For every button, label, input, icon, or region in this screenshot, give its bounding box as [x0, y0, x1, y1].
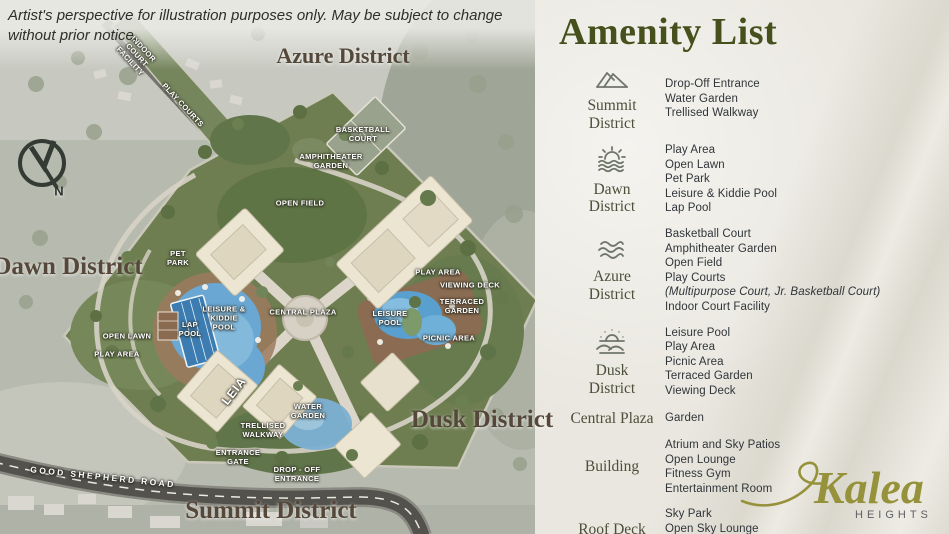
- amenity-item: Play Area: [665, 340, 949, 355]
- page-title: Amenity List: [559, 10, 949, 54]
- map-label-leisure-pool: LEISURE POOL: [367, 309, 413, 327]
- district-label-dawn: Dawn District: [0, 253, 143, 281]
- amenity-item: Indoor Court Facility: [665, 300, 949, 315]
- section-name: Roof Deck: [578, 521, 646, 534]
- amenity-item: Picnic Area: [665, 355, 949, 370]
- amenity-item: Play Courts: [665, 271, 949, 286]
- amenity-item: Trellised Walkway: [665, 106, 949, 121]
- district-label-azure: Azure District: [276, 43, 409, 69]
- amenity-item: Pet Park: [665, 172, 949, 187]
- map-label-central-plaza: CENTRAL PLAZA: [269, 308, 336, 317]
- amenity-item: Open Field: [665, 256, 949, 271]
- amenity-item: Amphitheater Garden: [665, 242, 949, 257]
- kalea-heights-logo: Kalea HEIGHTS: [738, 445, 943, 530]
- map-label-viewing-deck: VIEWING DECK: [440, 281, 500, 290]
- map-label-pet-park: PET PARK: [161, 249, 195, 267]
- compass-north-label: N: [54, 184, 63, 199]
- map-label-open-lawn: OPEN LAWN: [103, 332, 152, 341]
- logo-wordmark: Kalea: [813, 462, 924, 513]
- summit-district-label: Summit District: [559, 66, 665, 132]
- amenity-item: Lap Pool: [665, 201, 949, 216]
- section-name: Building: [585, 458, 639, 475]
- district-name: Summit District: [576, 97, 648, 132]
- map-label-play-area-west: PLAY AREA: [94, 350, 139, 359]
- amenity-item: Terraced Garden: [665, 369, 949, 384]
- dusk-district-label: Dusk District: [559, 327, 665, 397]
- amenity-item: Open Lawn: [665, 158, 949, 173]
- map-label-play-area-east: PLAY AREA: [415, 268, 460, 277]
- amenity-item: Drop-Off Entrance: [665, 77, 949, 92]
- amenity-item: Garden: [665, 411, 949, 426]
- sunrise-icon: [594, 144, 630, 178]
- map-label-leisure-kiddie-pool: LEISURE & KIDDIE POOL: [198, 305, 250, 332]
- section-name: Central Plaza: [570, 410, 653, 427]
- district-name: Azure District: [576, 268, 648, 303]
- map-label-trellised-walkway: TRELLISED WALKWAY: [237, 421, 289, 439]
- site-map: Artist's perspective for illustration pu…: [0, 0, 535, 534]
- amenity-item: Basketball Court: [665, 227, 949, 242]
- brochure-page: Artist's perspective for illustration pu…: [0, 0, 949, 534]
- amenity-item: Play Area: [665, 143, 949, 158]
- waves-icon: [594, 239, 630, 265]
- disclaimer-text: Artist's perspective for illustration pu…: [8, 6, 513, 47]
- amenity-item: Water Garden: [665, 92, 949, 107]
- map-label-basketball-court: BASKETBALL COURT: [332, 125, 394, 143]
- central-plaza-label: Central Plaza: [559, 410, 665, 427]
- map-label-drop-off-entrance: DROP - OFF ENTRANCE: [265, 465, 329, 483]
- map-label-entrance-gate: ENTRANCE GATE: [211, 448, 265, 466]
- amenity-row-dawn: Dawn District Play Area Open Lawn Pet Pa…: [559, 143, 949, 216]
- district-label-dusk: Dusk District: [411, 406, 553, 434]
- dawn-district-label: Dawn District: [559, 144, 665, 216]
- amenity-item: Leisure & Kiddie Pool: [665, 187, 949, 202]
- amenity-row-central-plaza: Central Plaza Garden: [559, 410, 949, 427]
- sunset-icon: [594, 327, 630, 359]
- azure-district-label: Azure District: [559, 239, 665, 303]
- map-label-amphitheater-garden: AMPHITHEATER GARDEN: [285, 152, 377, 170]
- map-label-water-garden: WATER GARDEN: [286, 402, 330, 420]
- district-name: Dawn District: [576, 181, 648, 216]
- district-name: Dusk District: [576, 362, 648, 397]
- amenity-row-summit: Summit District Drop-Off Entrance Water …: [559, 66, 949, 132]
- logo-subtitle: HEIGHTS: [855, 509, 932, 521]
- map-label-open-field: OPEN FIELD: [276, 199, 325, 208]
- mountains-icon: [594, 66, 630, 94]
- amenity-item-note: (Multipurpose Court, Jr. Basketball Cour…: [665, 285, 949, 300]
- amenity-list-panel: Amenity List Summit District Drop-Off En…: [535, 0, 949, 534]
- roof-deck-label: Roof Deck: [559, 521, 665, 534]
- map-label-picnic-area: PICNIC AREA: [423, 334, 475, 343]
- amenity-item: Viewing Deck: [665, 384, 949, 399]
- amenity-row-dusk: Dusk District Leisure Pool Play Area Pic…: [559, 326, 949, 399]
- building-label: Building: [559, 458, 665, 475]
- logo-flourish: [742, 463, 824, 505]
- district-label-summit: Summit District: [185, 497, 357, 525]
- amenity-row-azure: Azure District Basketball Court Amphithe…: [559, 227, 949, 315]
- map-label-terraced-garden: TERRACED GARDEN: [434, 297, 490, 315]
- amenity-item: Leisure Pool: [665, 326, 949, 341]
